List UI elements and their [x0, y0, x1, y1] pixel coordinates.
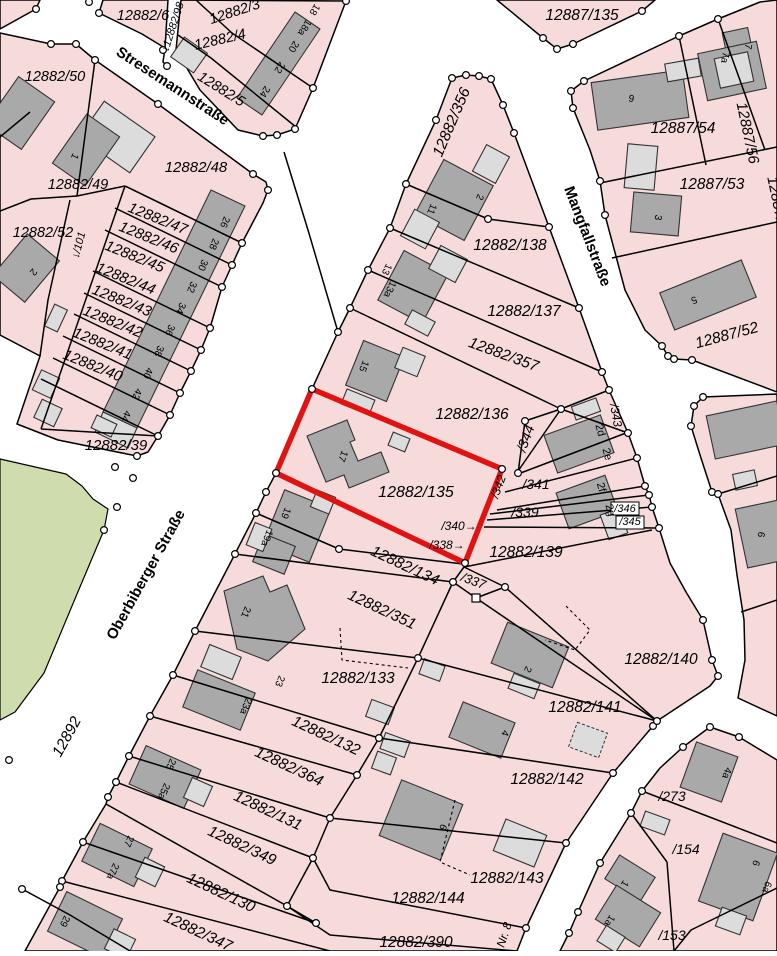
svg-text:12882/48: 12882/48	[165, 159, 228, 176]
svg-text:12887/53: 12887/53	[680, 176, 745, 193]
svg-text:12882/140: 12882/140	[624, 651, 698, 668]
svg-text:12882/6: 12882/6	[117, 8, 170, 24]
svg-text:12882/390: 12882/390	[379, 934, 453, 951]
svg-text:12887/54: 12887/54	[651, 120, 716, 137]
svg-text:/154: /154	[671, 841, 699, 857]
svg-text:12882/39: 12882/39	[85, 437, 148, 454]
svg-text:/345: /345	[618, 516, 641, 528]
svg-text:12882/144: 12882/144	[391, 890, 465, 907]
svg-text:12882/138: 12882/138	[473, 237, 547, 254]
svg-text:12882/135: 12882/135	[378, 484, 454, 501]
svg-text:12882/133: 12882/133	[321, 670, 395, 687]
svg-text:/338→: /338→	[428, 538, 464, 552]
svg-text:12882/50: 12882/50	[25, 69, 85, 85]
svg-text:12882/137: 12882/137	[487, 303, 562, 320]
svg-text:/339: /339	[510, 504, 538, 520]
svg-text:12882/141: 12882/141	[548, 699, 621, 716]
svg-text:12882/136: 12882/136	[435, 406, 509, 423]
svg-text:12882/139: 12882/139	[489, 544, 563, 561]
svg-text:12882/49: 12882/49	[48, 177, 108, 193]
svg-text:12882/143: 12882/143	[470, 870, 544, 887]
svg-text:/273: /273	[657, 788, 685, 804]
svg-text:12882/142: 12882/142	[510, 771, 584, 788]
svg-text:12882/52: 12882/52	[13, 225, 73, 241]
svg-text:/340→: /340→	[440, 519, 476, 533]
svg-text:/153: /153	[657, 927, 685, 943]
svg-text:/341: /341	[521, 476, 549, 492]
svg-text:12887/135: 12887/135	[545, 7, 619, 24]
